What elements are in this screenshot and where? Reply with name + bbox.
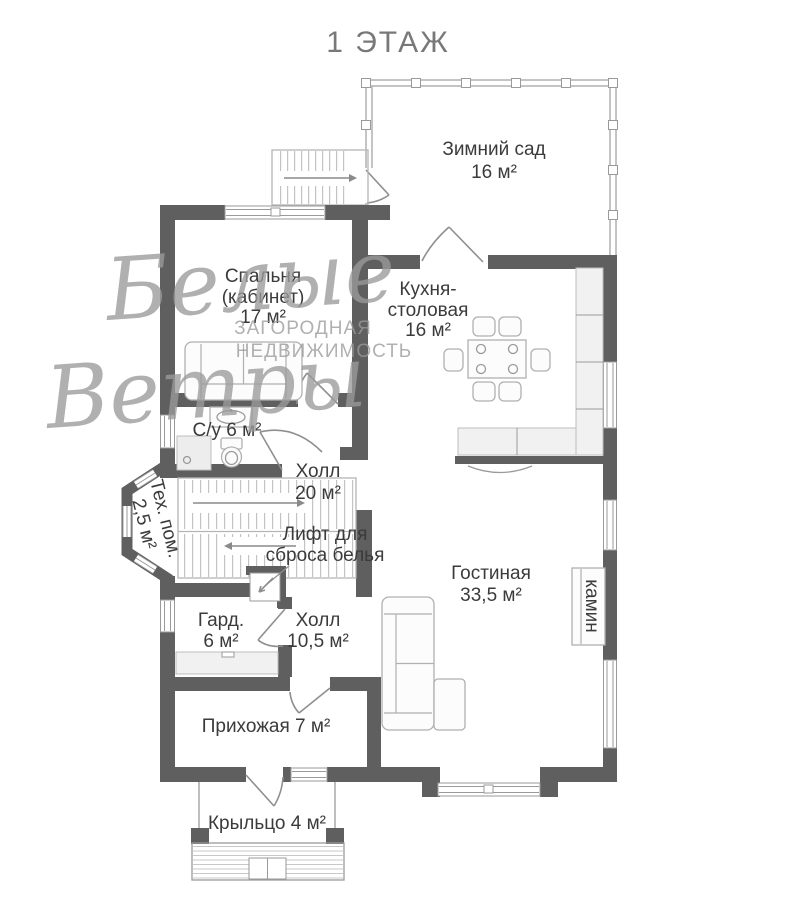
living-room-east-window-lower (604, 660, 617, 748)
toilet (221, 438, 242, 467)
svg-text:33,5 м²: 33,5 м² (460, 585, 522, 606)
svg-text:Лифт для: Лифт для (283, 524, 368, 545)
watermark: Белые Ветры ЗАГОРОДНАЯ НЕДВИЖИМОСТЬ (40, 221, 412, 449)
wardrobe-label: Гард. 6 м² (198, 610, 244, 652)
svg-text:10,5 м²: 10,5 м² (287, 631, 349, 652)
watermark-caps-2: НЕДВИЖИМОСТЬ (236, 341, 413, 362)
svg-text:20 м²: 20 м² (295, 483, 341, 504)
svg-text:Зимний сад: Зимний сад (442, 139, 545, 160)
entrance-label: Прихожая 7 м² (202, 716, 331, 737)
svg-text:Холл: Холл (296, 610, 341, 631)
svg-text:16 м²: 16 м² (471, 162, 517, 183)
floor-plan-drawing: 1 ЭТАЖ (0, 0, 800, 900)
fireplace: камин (572, 568, 605, 645)
kitchen-window (604, 362, 617, 428)
living-room-south-window (438, 783, 540, 796)
watermark-caps-1: ЗАГОРОДНАЯ (234, 318, 372, 339)
porch-steps (192, 843, 344, 880)
porch-post (326, 828, 344, 844)
svg-text:Гард.: Гард. (198, 610, 244, 631)
svg-text:Кухня-: Кухня- (399, 279, 456, 300)
winter-garden-label: Зимний сад 16 м² (442, 139, 545, 183)
svg-text:16 м²: 16 м² (405, 320, 451, 341)
wardrobe-door (258, 609, 285, 646)
kitchen-arch-opening (468, 466, 532, 473)
living-sofa (382, 597, 465, 730)
hall-entry-label: Холл 10,5 м² (287, 610, 349, 652)
svg-text:сброса белья: сброса белья (266, 545, 385, 566)
svg-text:столовая: столовая (388, 300, 469, 321)
dining-table (468, 340, 526, 378)
kitchen-partition-wall (455, 456, 603, 464)
porch-label: Крыльцо 4 м² (208, 813, 326, 834)
svg-text:6 м²: 6 м² (203, 631, 238, 652)
laundry-chute (246, 566, 289, 608)
svg-text:Холл: Холл (296, 461, 341, 482)
bedroom-window (225, 206, 325, 219)
living-room-east-window-upper (604, 500, 617, 550)
page-title: 1 ЭТАЖ (326, 26, 450, 59)
laundry-chute-label: Лифт для сброса белья (266, 524, 385, 566)
entrance-window (291, 768, 327, 781)
wardrobe-window (161, 600, 175, 632)
hall-main-label: Холл 20 м² (295, 461, 341, 504)
fireplace-label: камин (581, 579, 602, 632)
kitchen-label: Кухня- столовая 16 м² (388, 279, 469, 341)
kitchen-furniture (444, 268, 603, 455)
winter-garden-door (366, 170, 389, 203)
svg-text:Гостиная: Гостиная (451, 563, 531, 584)
kitchen-garden-door (422, 227, 483, 262)
stairs-up-arrow (349, 174, 357, 182)
living-room-label: Гостиная 33,5 м² (451, 563, 531, 606)
floor-plan-page: 1 ЭТАЖ (0, 0, 800, 900)
front-door (246, 775, 283, 806)
shower (177, 436, 211, 470)
wardrobe-shelf (176, 652, 278, 674)
porch-post (191, 828, 209, 844)
entrance-hall-door (290, 688, 330, 713)
exterior-stairs (272, 150, 368, 205)
